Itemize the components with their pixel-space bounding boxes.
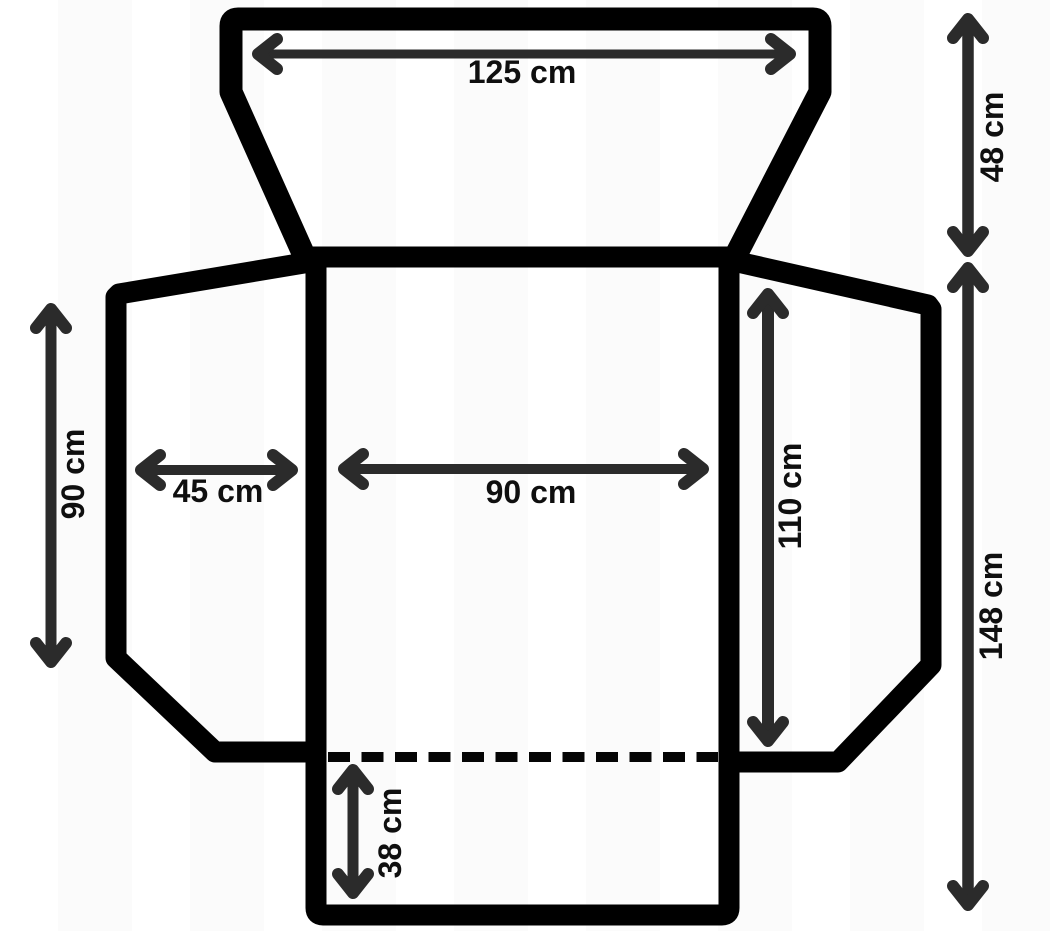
svg-text:45 cm: 45 cm xyxy=(173,473,264,509)
svg-text:110 cm: 110 cm xyxy=(772,443,808,550)
svg-text:90 cm: 90 cm xyxy=(55,429,91,520)
svg-text:90 cm: 90 cm xyxy=(486,474,577,510)
svg-text:48 cm: 48 cm xyxy=(974,92,1010,183)
svg-text:125 cm: 125 cm xyxy=(468,54,577,90)
svg-text:38 cm: 38 cm xyxy=(372,788,408,879)
svg-text:148 cm: 148 cm xyxy=(973,552,1009,661)
